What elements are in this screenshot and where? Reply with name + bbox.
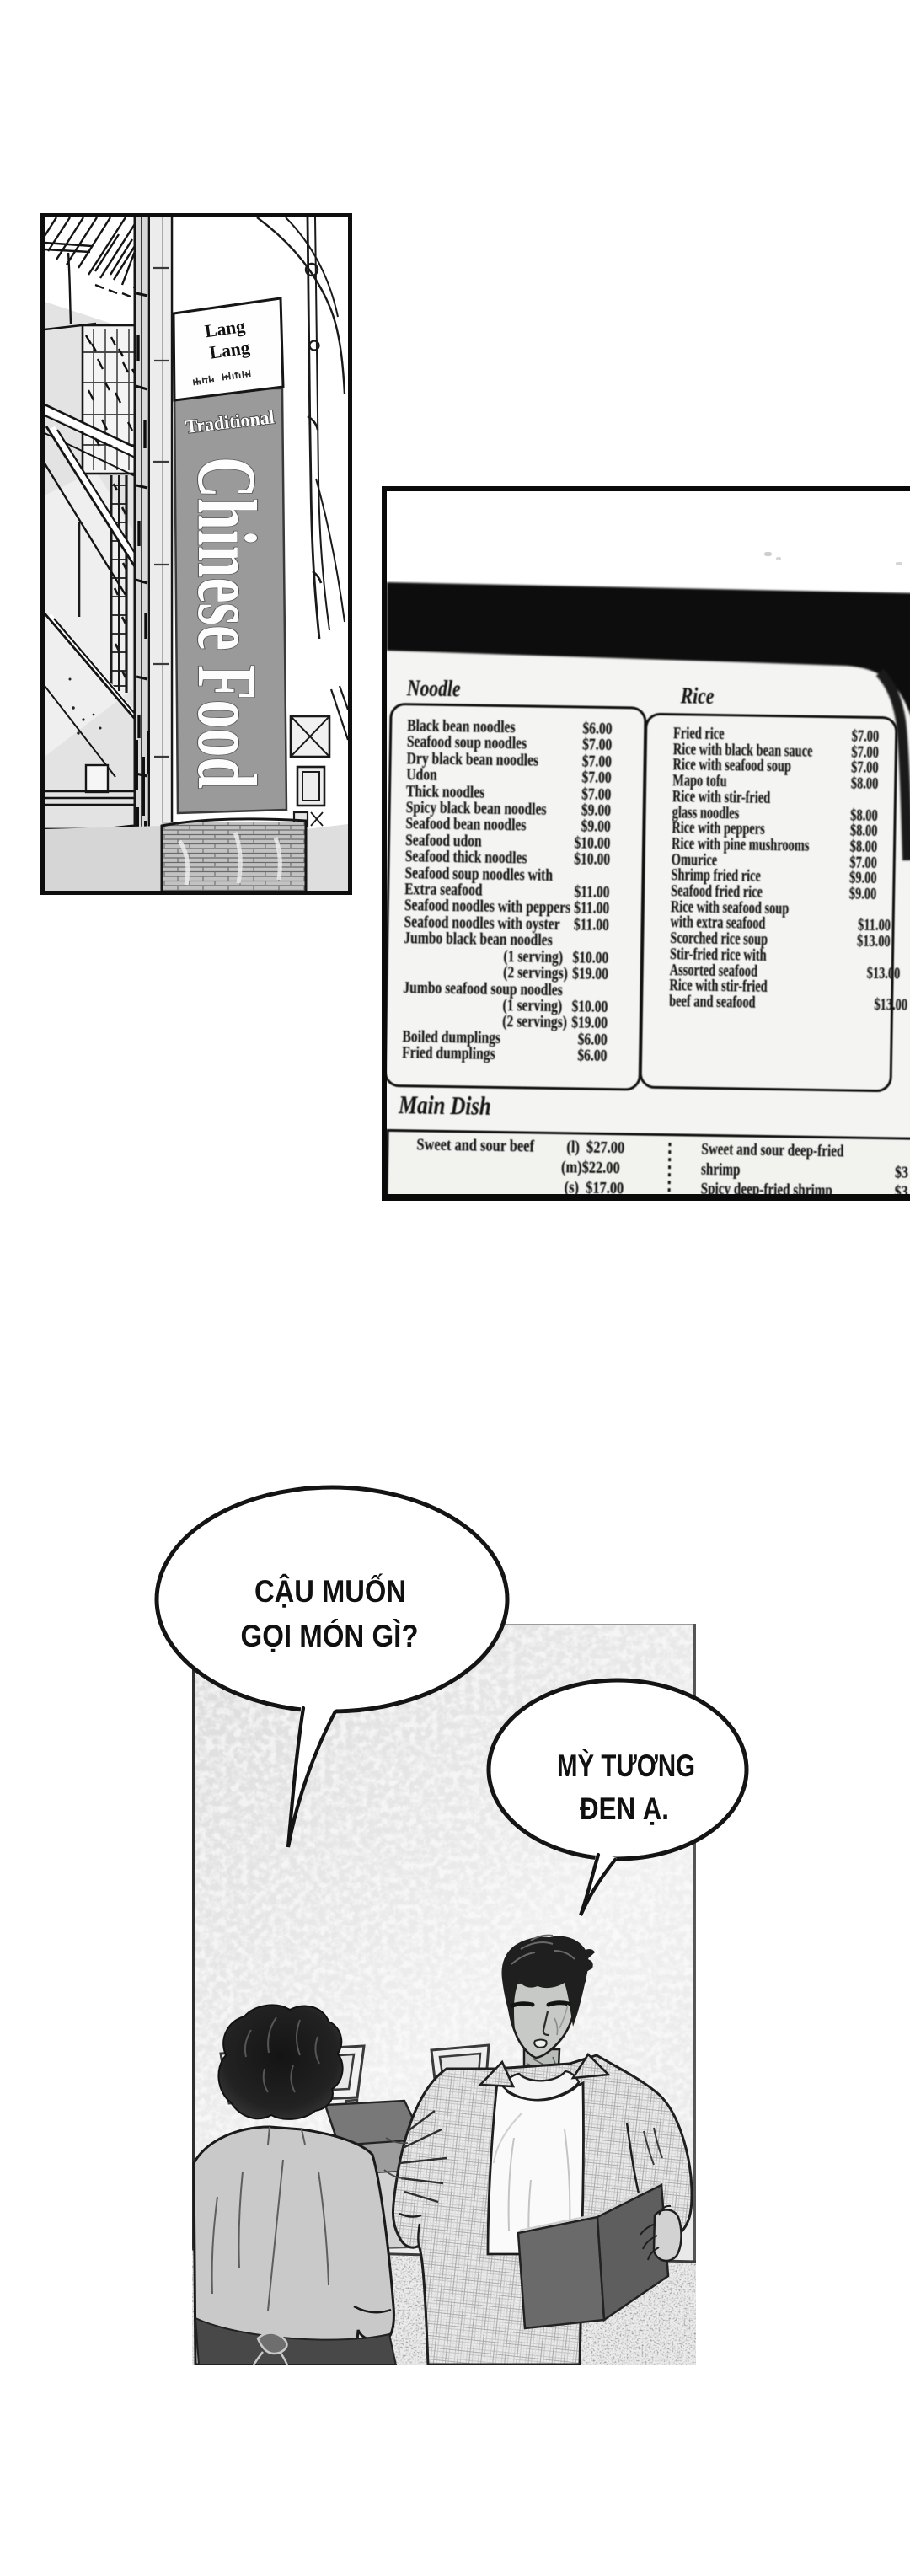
svg-text:ĐEN Ạ.: ĐEN Ạ. — [580, 1791, 669, 1826]
svg-text:GỌI MÓN GÌ?: GỌI MÓN GÌ? — [241, 1618, 419, 1653]
svg-text:MỲ TƯƠNG: MỲ TƯƠNG — [557, 1749, 695, 1783]
svg-text:CẬU MUỐN: CẬU MUỐN — [254, 1573, 406, 1609]
svg-text:Chinese Food: Chinese Food — [180, 457, 274, 789]
